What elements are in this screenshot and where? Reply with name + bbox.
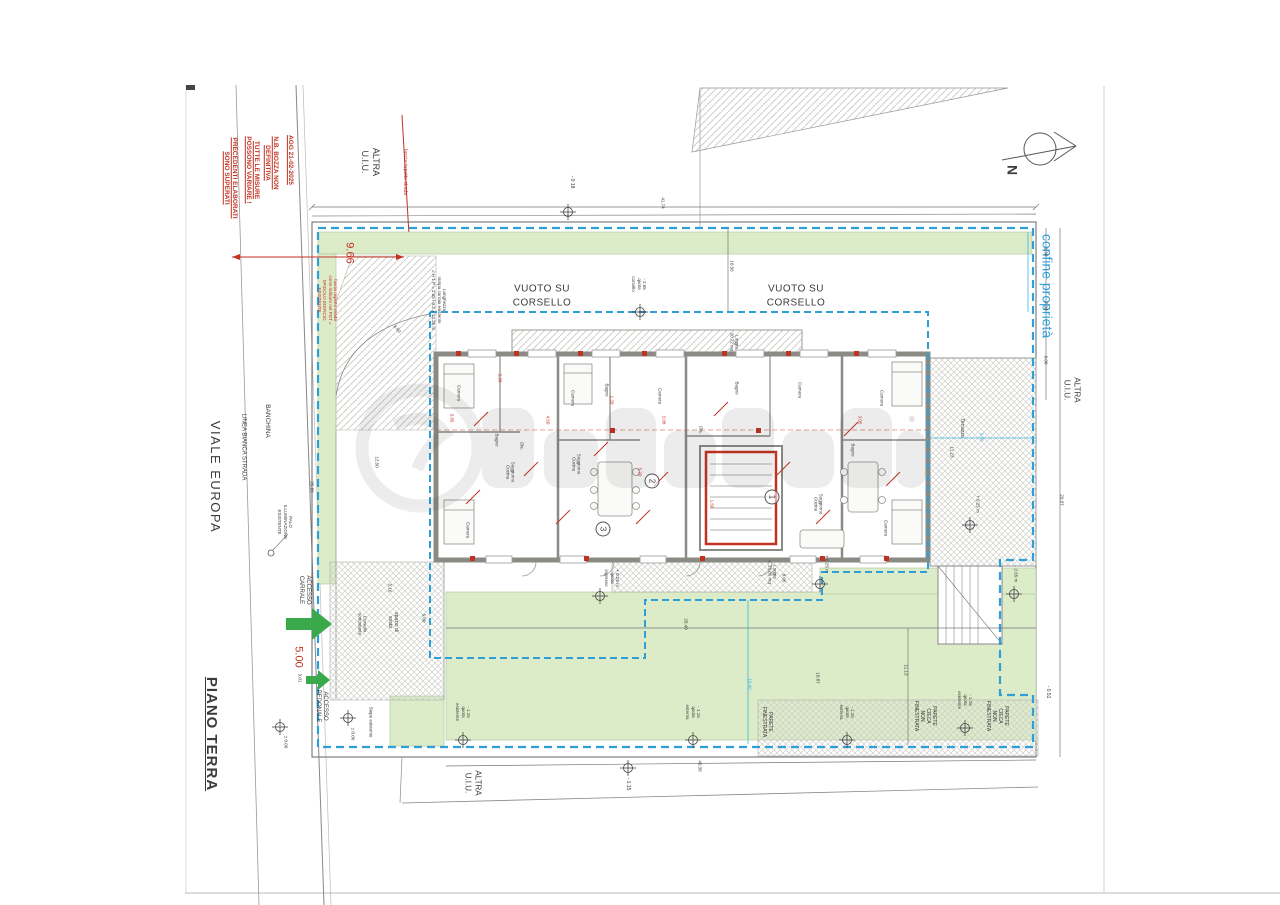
quota-265-stairs: - 2.65 m — [1013, 566, 1018, 583]
dim-1250: 12.50 — [374, 456, 379, 467]
north-label: N — [1004, 165, 1021, 175]
accesso-pedonale-arrow — [306, 670, 330, 690]
accesso-pedonale-label: ACCESSO PEDONALE — [314, 690, 328, 723]
exterior-stairs — [938, 566, 1002, 644]
plan-dim: 4.50 — [545, 416, 550, 425]
ramp-note: Lunghezza rampa carraia esistente = H 1 … — [431, 270, 447, 330]
revision-line-2: N.B. BOZZA NON DEFINITIVA — [263, 136, 279, 189]
terrazzo-label: Terrazzo — [959, 418, 965, 437]
plan-dim: 5.70 — [637, 468, 642, 477]
accesso-width-sub: 3.01 — [297, 674, 302, 683]
dim-2840: 28.40 — [683, 618, 688, 629]
dim-516: 5.16 — [387, 584, 392, 593]
quota-zero-street: ± 0.00 — [283, 736, 288, 748]
room-label: Camera — [797, 382, 802, 398]
room-label: Bagno — [604, 383, 609, 396]
room-label: Camera — [883, 520, 888, 536]
vuoto-corsello-right: VUOTO SU CORSELLO — [767, 283, 825, 310]
loggia-top-label: Loggia 20.72 mq — [729, 333, 740, 352]
parete-cieca-label-2: PARETE CIECA NON FINESTRATA — [985, 701, 1009, 731]
dim-1113: 11.13 — [903, 665, 908, 676]
room-label: Dis. — [698, 426, 703, 434]
plan-dim: 3.05 — [857, 416, 862, 425]
plan-dim: 2.30 — [497, 374, 502, 383]
neighbour-top-label: ALTRA U.I.U. — [359, 148, 381, 176]
watermark-registered-icon: ® — [909, 415, 915, 425]
quota-051: - 0.51 — [1045, 686, 1051, 699]
dim-4038: 40.38 — [697, 760, 702, 771]
north-arrow — [1002, 132, 1076, 165]
parete-finestrata-label: PARETE FINESTRATA — [761, 707, 773, 737]
plan-dim: 3.08 — [661, 416, 666, 425]
dim-190: 1.90 — [1043, 248, 1048, 257]
room-label: Camera — [570, 390, 575, 406]
fascia-note: fascia rispetto strada come indicato nel… — [316, 275, 338, 324]
quota-corsello: - 2.65 quota corsello — [631, 276, 647, 292]
quota-115-esterna-1: - 1.15 quota esterna — [685, 704, 701, 719]
dim-798: 7.98 — [1043, 302, 1048, 311]
page-title: PIANO TERRA — [202, 677, 220, 791]
accesso-width-dim: 5.00 — [291, 646, 304, 667]
dim-2588: 25.88 — [309, 481, 314, 492]
room-label: Bagno — [850, 443, 855, 456]
unit-badge-2: 2 — [645, 474, 660, 489]
room-label: Bagno — [734, 381, 739, 394]
vuoto-corsello-left: VUOTO SU CORSELLO — [513, 283, 571, 310]
accesso-carrale-arrow — [286, 608, 332, 640]
room-label: Camera — [879, 390, 884, 406]
room-label: Camera — [657, 388, 662, 404]
dim-600: 6.00 — [1043, 356, 1048, 365]
room-label: Bagno — [494, 433, 499, 446]
dim-top: 41.74 — [660, 197, 665, 208]
quota-025-terrazzo: + 0.25 m — [975, 495, 980, 513]
unit-badge-1: 1 — [765, 490, 780, 505]
quota-115-esterna-2: - 1.15 quota esterna — [839, 704, 855, 719]
dim-1123: 11.23 — [949, 447, 954, 458]
quota-025-ingresso: + 0.25 m quota ingresso — [604, 569, 620, 587]
linea-bianca-label: LINEA BIANCA STRADA — [239, 414, 246, 481]
room-label: Camera — [456, 385, 461, 401]
quota-115-bottom: - 1.15 — [625, 778, 631, 791]
plan-linework — [0, 0, 1280, 905]
siepe-label: Siepe esistente — [368, 707, 373, 738]
dim-1056: 10.56 — [729, 260, 734, 271]
street-name: VIALE EUROPA — [207, 421, 223, 533]
accesso-carrale-label: ACCESSO CARRALE — [297, 575, 311, 604]
room-label: Soggiorno Cucina — [505, 462, 516, 483]
loggia-bottom-label: Loggia s. 13.86 mq — [767, 560, 778, 584]
plan-dim: 1.20 — [609, 396, 614, 405]
room-label: Soggiorno Cucina — [813, 494, 824, 515]
spazio-sosta-label: spazio di sosta — [387, 612, 399, 632]
fascia-line-label: fascia rispetto strada — [402, 149, 408, 195]
parete-cieca-label-1: PARETE CIECA NON FINESTRATA — [913, 701, 937, 731]
room-label: Camera — [465, 522, 470, 538]
plan-dim: 3.85 — [449, 414, 454, 423]
unit-badge-3: 3 — [596, 522, 611, 537]
corsello-note-label: Corsello sottostante — [357, 613, 368, 635]
revision-line-3: TUTTE LE MISURE POSSONO VARIARE ! — [244, 136, 260, 203]
plan-dim: 1.50 — [709, 500, 714, 509]
dim-500: 5.00 — [421, 614, 426, 623]
quota-115-esistente-left: - 1.15 quota esistente — [455, 703, 471, 721]
neighbour-right-label: ALTRA U.I.U. — [1062, 377, 1081, 402]
revision-line-1: AGG 21-02-2025 — [286, 135, 294, 185]
dim-805: 8.05 — [781, 574, 786, 583]
dim-1000: 10.00 — [747, 678, 752, 689]
room-label: Dis. — [519, 442, 524, 450]
banchina-label: BANCHINA — [263, 404, 271, 438]
scanned-floor-plan-page: VIALE EUROPA LINEA BIANCA STRADA BANCHIN… — [0, 0, 1280, 905]
quota-025-loggia: + 0.25 m — [824, 555, 829, 573]
quota-018: - 0.18 — [569, 176, 575, 189]
dim-2907: 29.07 — [1059, 494, 1064, 505]
dim-390: 3.90 — [979, 433, 984, 442]
quota-115-esistente-right: - 1.15 quota esistente — [957, 691, 973, 709]
fascia-dim: 9.66 — [342, 242, 355, 263]
revision-line-4: PRECEDENTI ELABORATI SONO SUPERATI — [222, 137, 238, 218]
palo-illuminazione-label: PALO ILLUMINAZIONE ESISTENTE — [277, 505, 293, 540]
neighbour-bottom-label: ALTRA U.I.U. — [463, 770, 482, 795]
dim-1087: 10.87 — [815, 672, 820, 683]
quota-zero-court: ± 0.00 — [350, 728, 355, 740]
room-label: Soggiorno Cucina — [571, 454, 582, 475]
